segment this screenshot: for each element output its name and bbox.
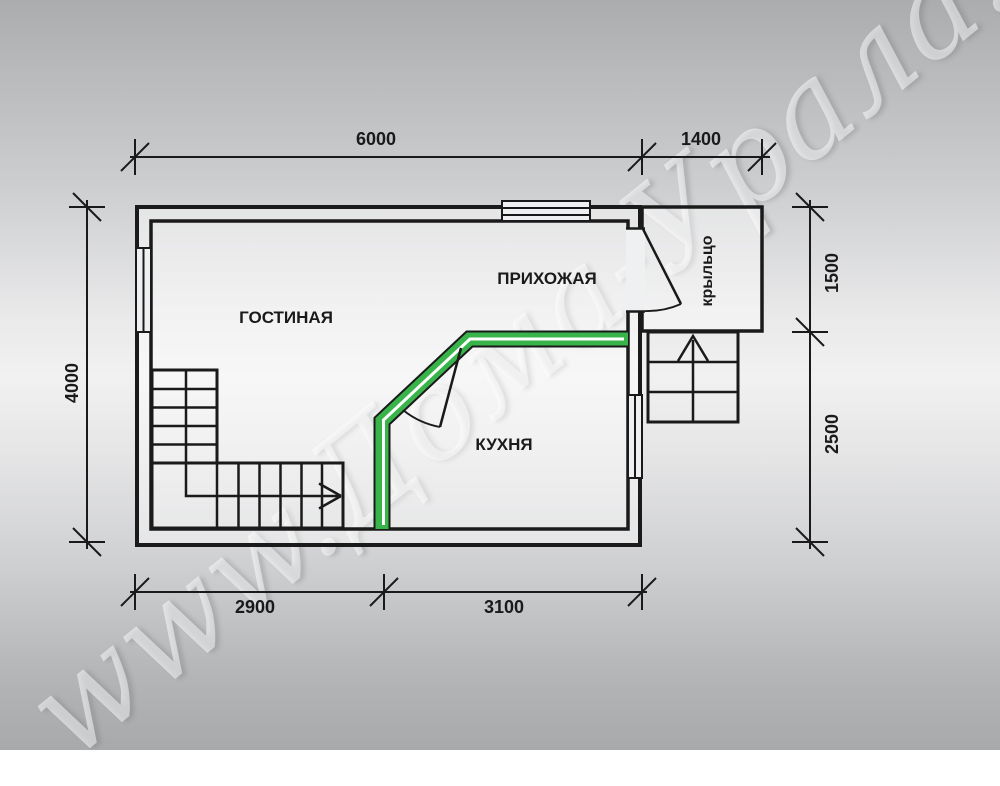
dimension-left: 4000 xyxy=(62,193,105,556)
window-right xyxy=(628,395,642,478)
dim-label-2500: 2500 xyxy=(822,414,842,454)
dim-label-3100: 3100 xyxy=(484,597,524,617)
dim-label-6000: 6000 xyxy=(356,129,396,149)
window-left xyxy=(136,248,151,332)
dimension-bottom: 2900 3100 xyxy=(121,574,656,617)
window-top xyxy=(502,201,590,221)
room-label-hallway: ПРИХОЖАЯ xyxy=(497,269,597,288)
porch-steps xyxy=(648,332,738,422)
room-label-kitchen: КУХНЯ xyxy=(475,435,532,454)
dimension-top: 6000 1400 xyxy=(121,129,776,175)
dim-label-1400: 1400 xyxy=(681,129,721,149)
dim-label-2900: 2900 xyxy=(235,597,275,617)
room-label-living-room: ГОСТИНАЯ xyxy=(239,308,333,327)
room-label-porch: крыльцо xyxy=(699,235,716,306)
dimension-right: 1500 2500 xyxy=(792,193,842,556)
dim-label-1500: 1500 xyxy=(822,253,842,293)
dim-label-4000: 4000 xyxy=(62,363,82,403)
floor-plan-drawing: 6000 1400 2900 3100 4000 1500 2500 ГОСТИ… xyxy=(0,0,1000,750)
